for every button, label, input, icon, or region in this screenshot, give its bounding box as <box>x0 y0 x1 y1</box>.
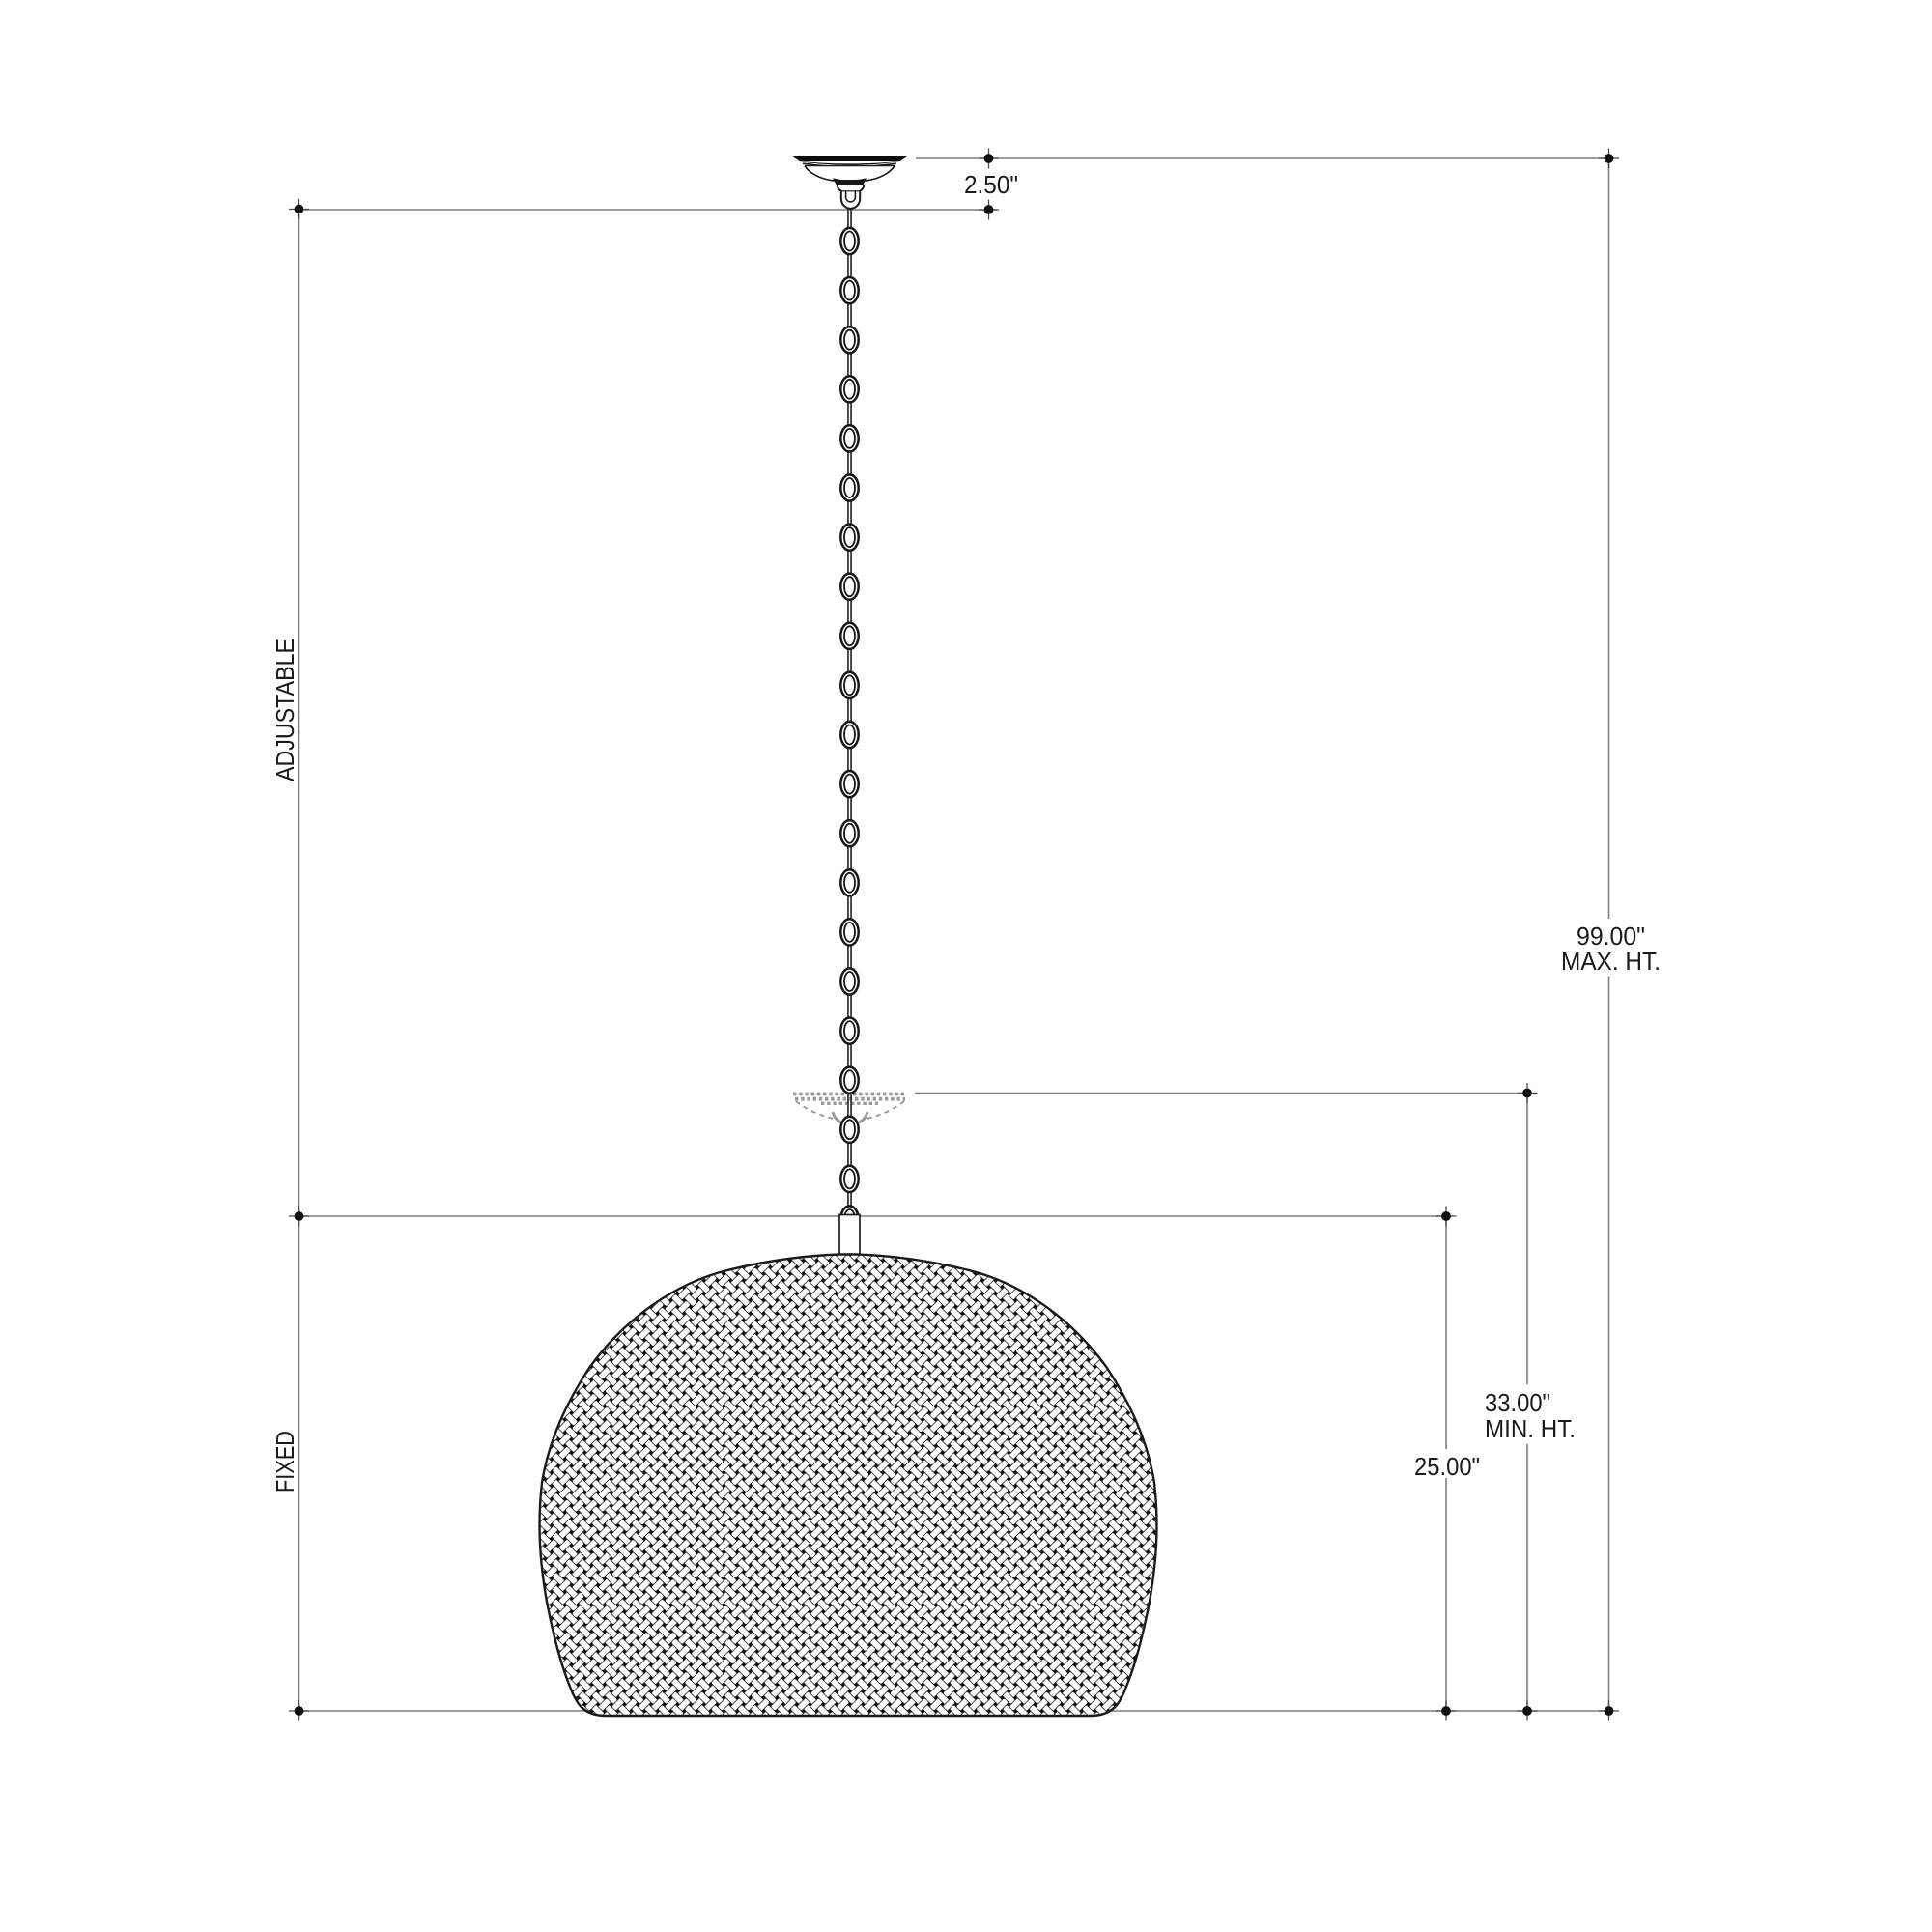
svg-text:33.00": 33.00" <box>1485 1388 1550 1417</box>
svg-text:FIXED: FIXED <box>270 1431 299 1492</box>
svg-text:ADJUSTABLE: ADJUSTABLE <box>270 639 299 781</box>
svg-text:25.00": 25.00" <box>1414 1452 1480 1481</box>
svg-text:MAX. HT.: MAX. HT. <box>1561 947 1661 976</box>
svg-text:2.50": 2.50" <box>964 170 1018 199</box>
svg-text:MIN. HT.: MIN. HT. <box>1485 1414 1576 1443</box>
